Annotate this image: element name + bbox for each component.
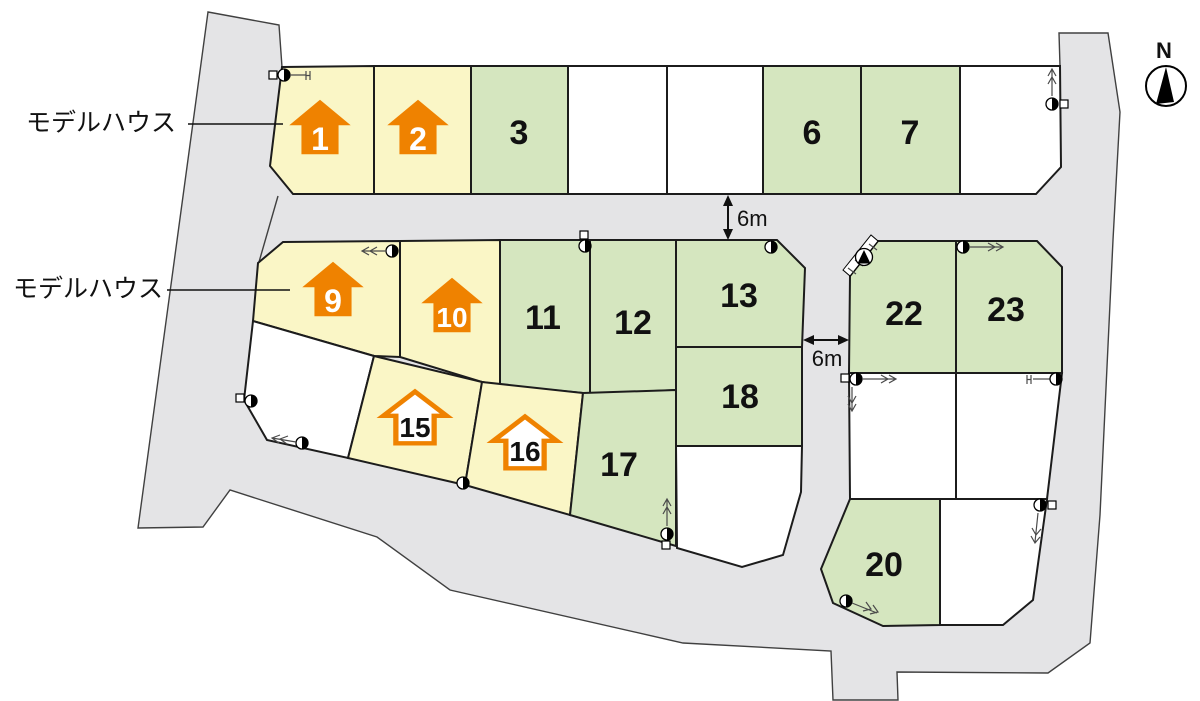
utility-pole-icon <box>840 595 852 607</box>
road-width-label-vertical: 6m <box>737 206 768 231</box>
lot-16-number: 16 <box>509 436 540 467</box>
lot-18-number: 18 <box>721 378 759 416</box>
boundary-marker-icon <box>841 374 849 382</box>
lot-1-number: 1 <box>311 121 329 157</box>
north-label: N <box>1156 38 1172 63</box>
lot-15-number: 15 <box>399 412 430 443</box>
model-house-label-top: モデルハウス <box>26 109 176 137</box>
boundary-marker-icon <box>1048 501 1056 509</box>
lot-17-number: 17 <box>600 446 638 484</box>
north-compass: N <box>1146 38 1186 106</box>
lot-11-number: 11 <box>525 299 561 337</box>
lot-13-number: 13 <box>720 277 758 315</box>
hydrant-marker-icon <box>856 249 873 266</box>
site-plan-map: 1 2 3 6 7 9 10 11 12 13 15 16 17 18 20 2… <box>0 0 1200 701</box>
utility-pole-icon <box>579 240 591 252</box>
utility-pole-icon <box>1034 499 1046 511</box>
lot-23-number: 23 <box>987 291 1025 329</box>
boundary-marker-icon <box>1060 100 1068 108</box>
lot-12-number: 12 <box>614 304 652 342</box>
lot-2-number: 2 <box>409 121 427 157</box>
utility-pole-icon <box>278 69 290 81</box>
utility-pole-icon <box>296 437 308 449</box>
boundary-marker-icon <box>269 71 277 79</box>
utility-pole-icon <box>765 241 777 253</box>
boundary-marker-icon <box>580 231 588 239</box>
utility-pole-icon <box>661 528 673 540</box>
lot-6-number: 6 <box>803 114 822 152</box>
lot-unnumbered-b2[interactable] <box>676 446 802 567</box>
lot-7-number: 7 <box>901 114 920 152</box>
lot-unnumbered-a2[interactable] <box>667 66 763 194</box>
road-width-label-horizontal: 6m <box>812 346 843 371</box>
lot-unnumbered-c1[interactable] <box>849 373 956 499</box>
utility-pole-icon <box>957 241 969 253</box>
utility-pole-icon <box>245 395 257 407</box>
model-house-label-middle: モデルハウス <box>13 275 163 303</box>
boundary-marker-icon <box>236 394 244 402</box>
utility-pole-icon <box>850 373 862 385</box>
lot-10-number: 10 <box>436 302 467 333</box>
lot-22-number: 22 <box>885 295 923 333</box>
lot-9-number: 9 <box>324 283 342 319</box>
utility-pole-icon <box>1050 373 1062 385</box>
lot-unnumbered-c2[interactable] <box>956 373 1062 499</box>
block-right <box>821 235 1062 626</box>
utility-pole-icon <box>1046 98 1058 110</box>
block-top-row <box>270 66 1061 194</box>
boundary-marker-icon <box>662 541 670 549</box>
utility-pole-icon <box>457 477 469 489</box>
lot-3-number: 3 <box>510 114 529 152</box>
lot-unnumbered-a3[interactable] <box>960 66 1061 194</box>
utility-pole-icon <box>386 245 398 257</box>
lot-unnumbered-a1[interactable] <box>568 66 667 194</box>
lot-20-number: 20 <box>865 546 903 584</box>
